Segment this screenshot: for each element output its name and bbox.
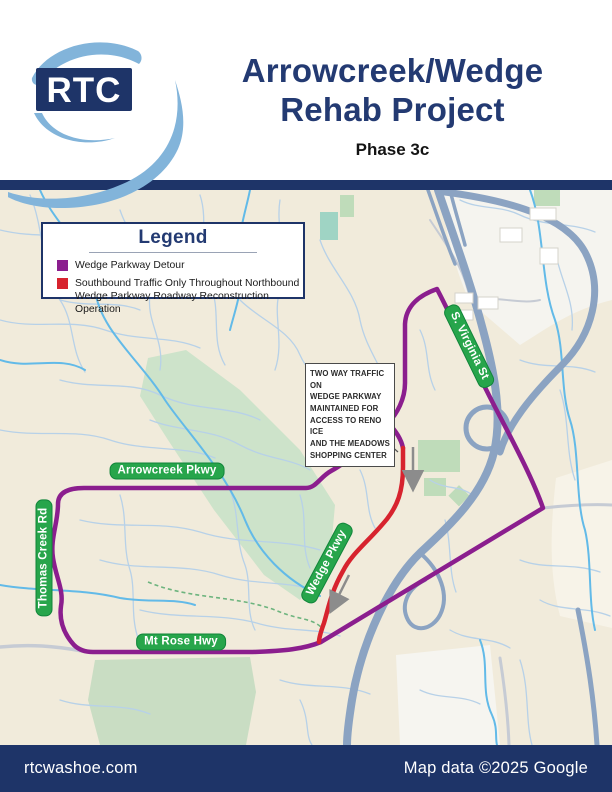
- legend-title: Legend: [43, 227, 303, 249]
- detour-swatch: [57, 260, 68, 271]
- footer-website: rtcwashoe.com: [24, 759, 138, 778]
- road-label-arrowcreek-pkwy: Arrowcreek Pkwy: [110, 463, 225, 480]
- legend-item-detour: Wedge Parkway Detour: [57, 259, 303, 272]
- road-label-mt-rose-hwy: Mt Rose Hwy: [136, 634, 226, 651]
- flyer-page: Arrowcreek/Wedge Rehab Project Phase 3c …: [0, 0, 612, 792]
- rtc-logo: RTC: [8, 18, 213, 210]
- rtc-logo-text: RTC: [47, 71, 122, 110]
- southbound-swatch: [57, 278, 68, 289]
- legend-item-label: Southbound Traffic Only Throughout North…: [75, 277, 303, 316]
- page-title-line1: Arrowcreek/Wedge: [185, 52, 600, 91]
- phase-subtitle: Phase 3c: [185, 140, 600, 160]
- rtc-logo-icon: RTC: [8, 18, 213, 210]
- legend-divider: [89, 252, 257, 253]
- traffic-callout: TWO WAY TRAFFIC ON WEDGE PARKWAY MAINTAI…: [305, 363, 395, 467]
- footer-map-attribution: Map data ©2025 Google: [404, 759, 588, 778]
- footer: rtcwashoe.com Map data ©2025 Google: [0, 745, 612, 792]
- legend: Legend Wedge Parkway Detour Southbound T…: [41, 222, 305, 299]
- page-title-line2: Rehab Project: [185, 91, 600, 130]
- road-label-thomas-creek-rd: Thomas Creek Rd: [36, 500, 53, 617]
- legend-item-label: Wedge Parkway Detour: [75, 259, 185, 272]
- legend-item-southbound: Southbound Traffic Only Throughout North…: [57, 277, 303, 316]
- project-map: Legend Wedge Parkway Detour Southbound T…: [0, 190, 612, 745]
- title-block: Arrowcreek/Wedge Rehab Project Phase 3c: [185, 52, 600, 160]
